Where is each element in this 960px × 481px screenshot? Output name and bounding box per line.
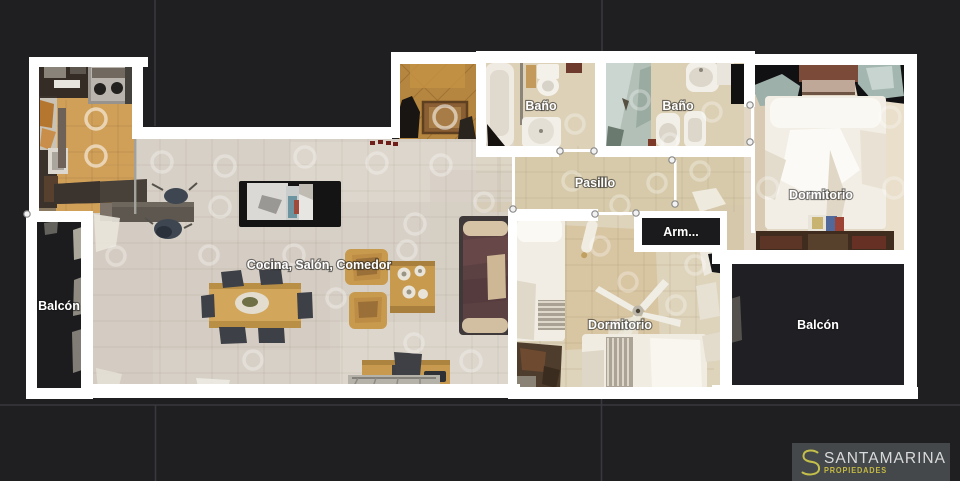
svg-text:Balcón: Balcón [797,318,839,332]
svg-text:Baño: Baño [525,99,557,113]
svg-text:Dormitorio: Dormitorio [588,318,652,332]
svg-text:Balcón: Balcón [38,299,80,313]
svg-text:Baño: Baño [662,99,694,113]
svg-text:Pasillo: Pasillo [575,176,616,190]
svg-text:Dormitorio: Dormitorio [789,188,853,202]
svg-text:PROPIEDADES: PROPIEDADES [824,465,887,475]
svg-text:Arm...: Arm... [663,225,698,239]
svg-text:Cocina, Salón, Comedor: Cocina, Salón, Comedor [247,258,392,272]
